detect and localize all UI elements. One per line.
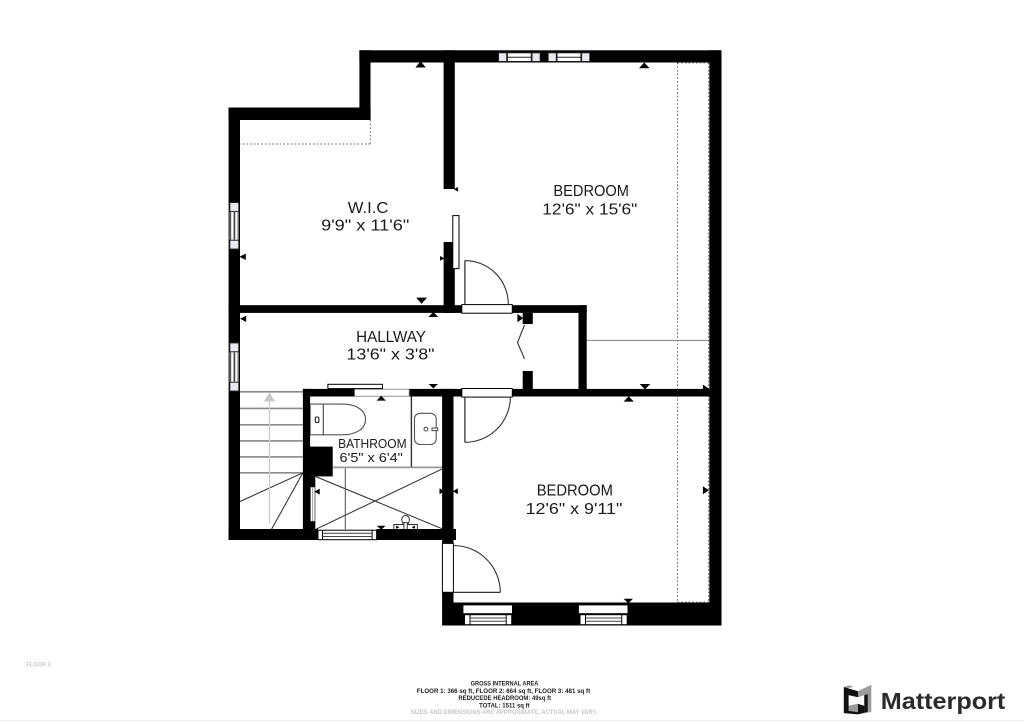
svg-text:BEDROOM: BEDROOM: [553, 183, 629, 200]
svg-text:BATHROOM: BATHROOM: [338, 436, 407, 451]
svg-text:GROSS INTERNAL AREA: GROSS INTERNAL AREA: [471, 681, 539, 688]
svg-text:12'6" x 9'11": 12'6" x 9'11": [526, 501, 623, 518]
svg-text:9'9" x 11'6": 9'9" x 11'6": [321, 218, 409, 235]
svg-text:6'5" x 6'4": 6'5" x 6'4": [340, 450, 404, 465]
svg-text:FLOOR 1: 366 sq ft, FLOOR 2: 6: FLOOR 1: 366 sq ft, FLOOR 2: 664 sq ft, …: [417, 688, 591, 695]
svg-text:W.I.C: W.I.C: [348, 200, 389, 217]
svg-text:12'6" x 15'6": 12'6" x 15'6": [542, 201, 637, 218]
svg-text:Matterport: Matterport: [881, 688, 1006, 714]
svg-text:BEDROOM: BEDROOM: [537, 483, 613, 500]
svg-text:13'6" x 3'8": 13'6" x 3'8": [346, 347, 434, 364]
svg-text:FLOOR 3: FLOOR 3: [26, 661, 51, 668]
svg-text:HALLWAY: HALLWAY: [356, 329, 426, 346]
svg-text:SIZES AND DIMENSIONS ARE APPRO: SIZES AND DIMENSIONS ARE APPROXIMATE, AC…: [411, 709, 598, 716]
svg-text:REDUCEDE HEADROOM: 49sq ft: REDUCEDE HEADROOM: 49sq ft: [458, 695, 551, 702]
